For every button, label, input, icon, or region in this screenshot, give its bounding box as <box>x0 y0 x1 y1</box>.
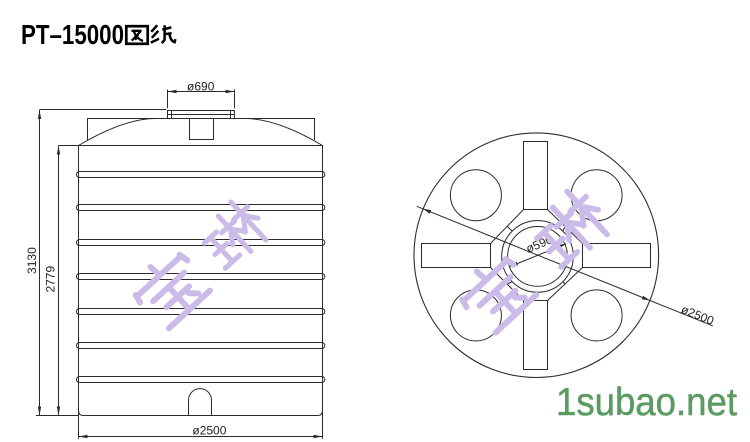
svg-text:ø2500: ø2500 <box>192 423 226 437</box>
svg-text:1subao.net: 1subao.net <box>556 381 737 424</box>
svg-text:3130: 3130 <box>25 247 39 274</box>
svg-text:PT–15000: PT–15000 <box>21 19 124 50</box>
svg-text:ø690: ø690 <box>187 80 215 94</box>
svg-text:2779: 2779 <box>44 266 58 293</box>
svg-text:ø2500: ø2500 <box>679 302 716 328</box>
